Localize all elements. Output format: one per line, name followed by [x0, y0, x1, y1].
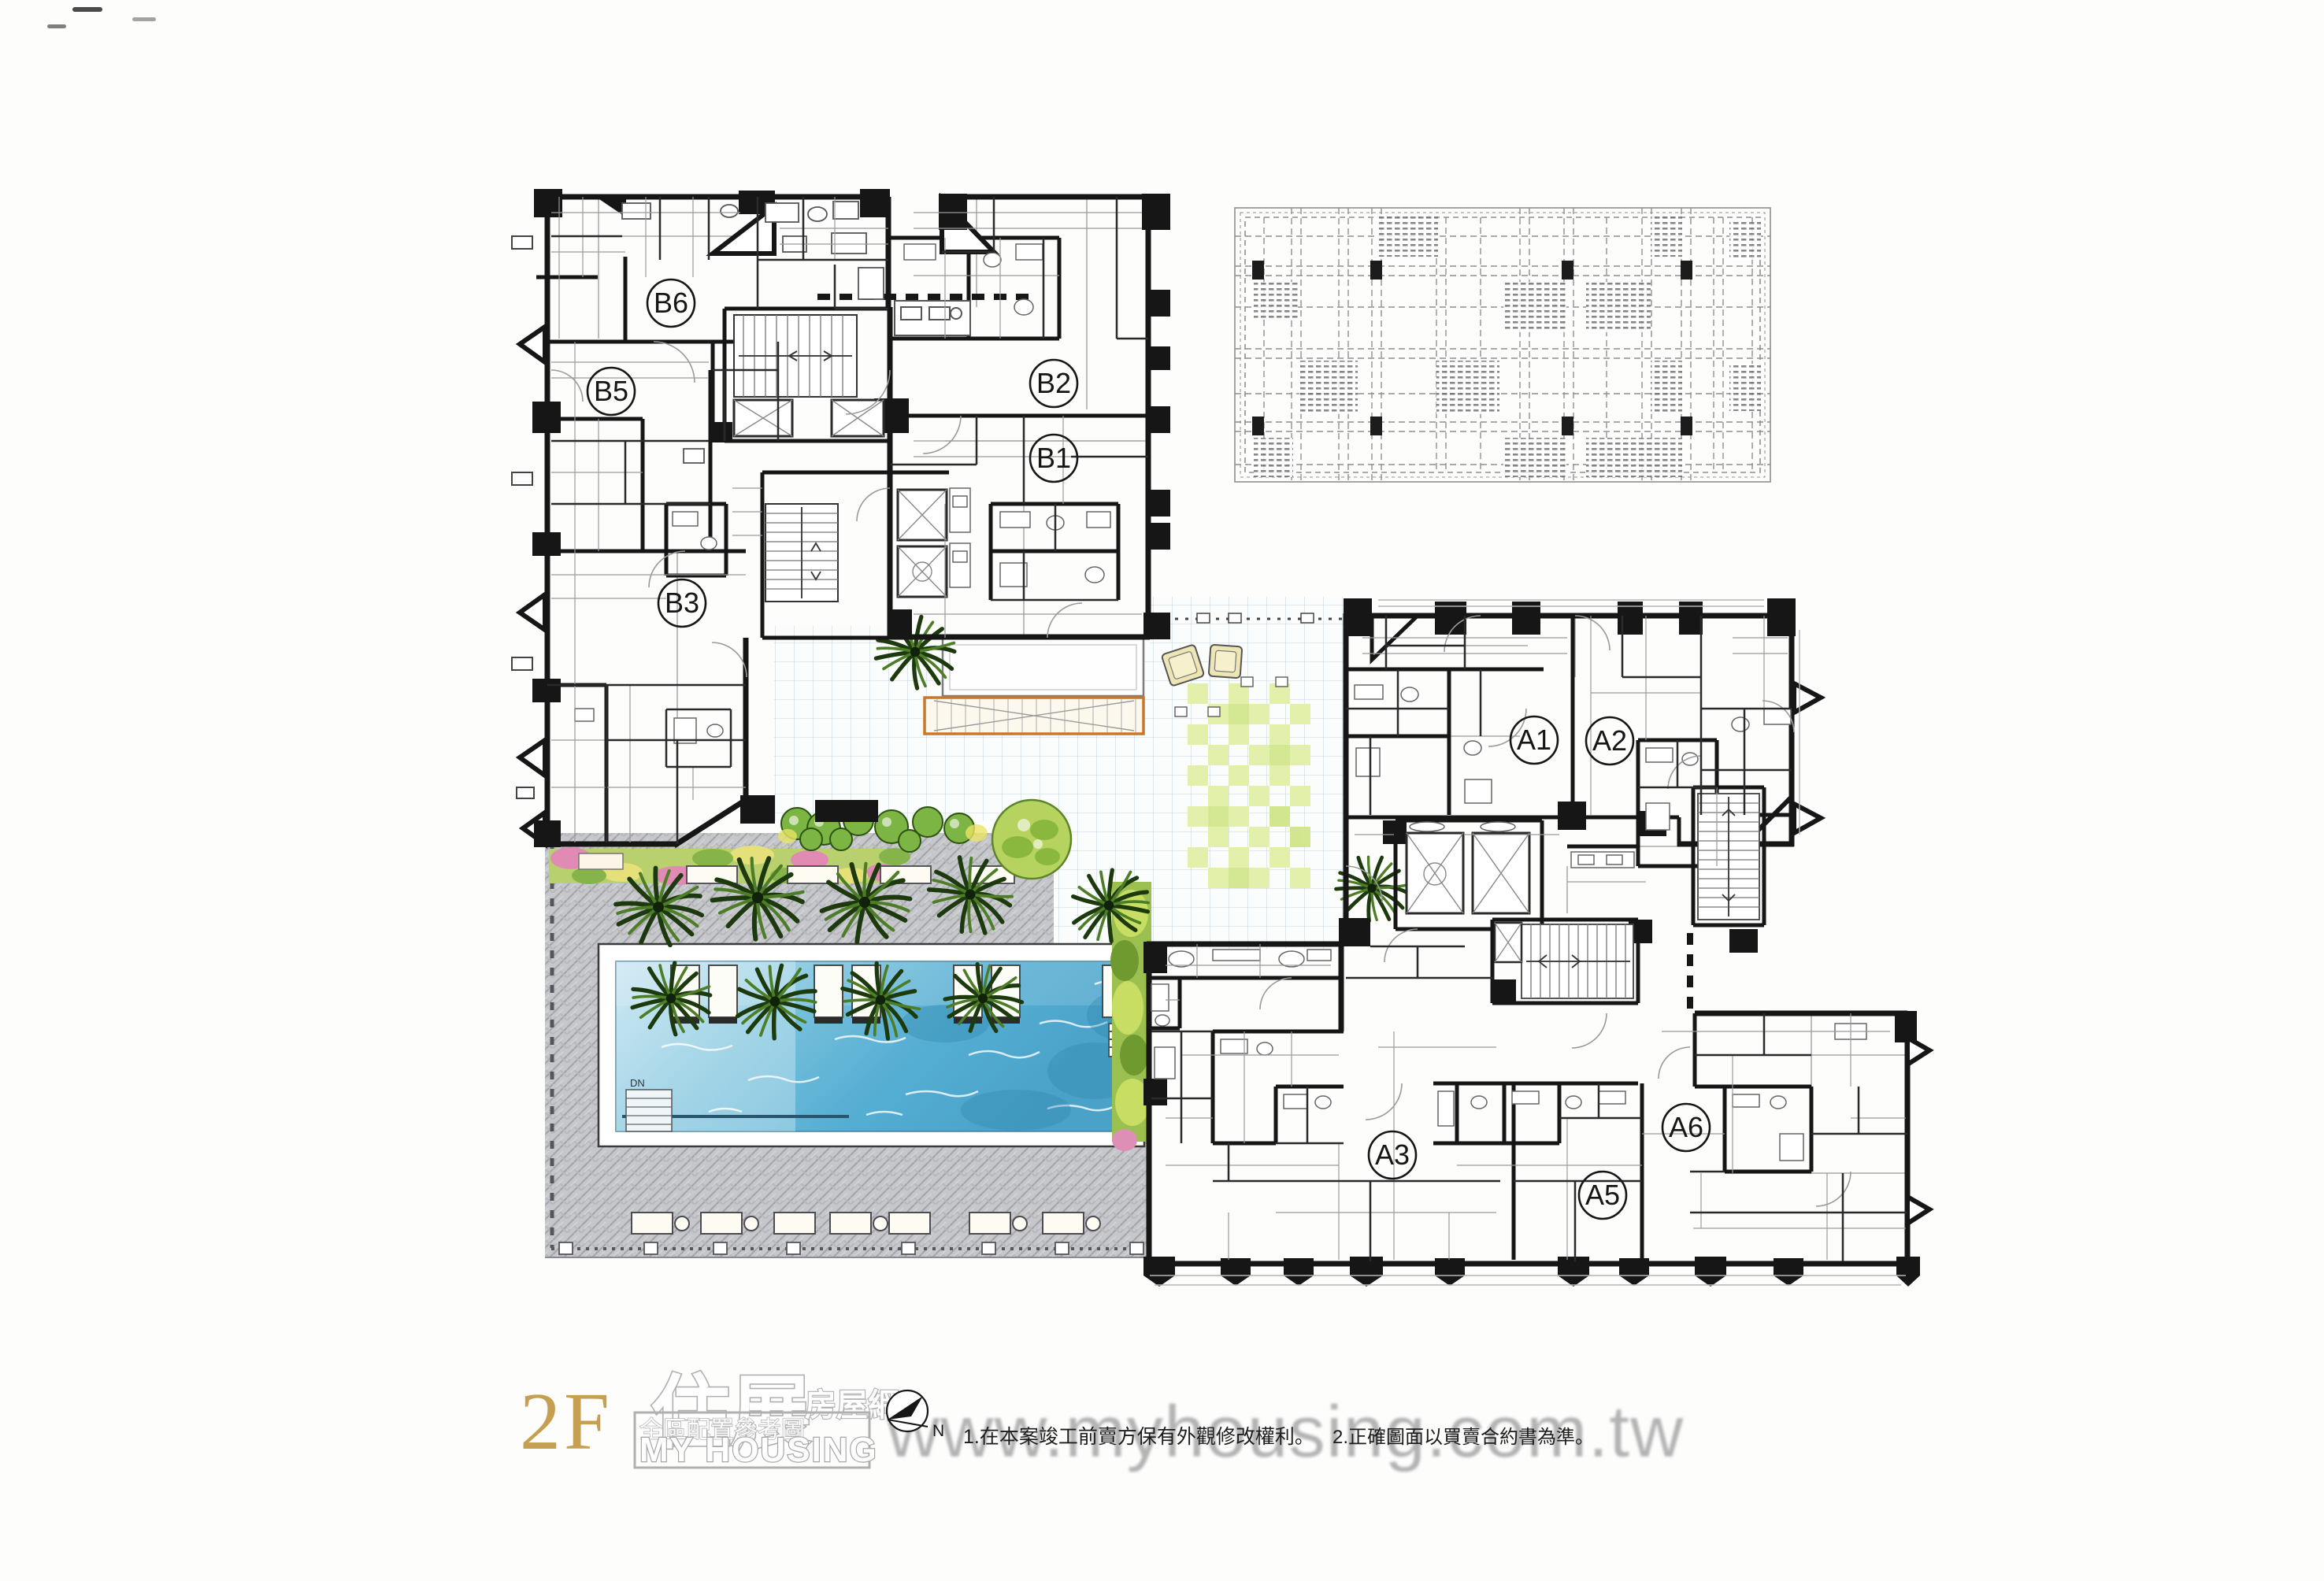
- svg-text:DN: DN: [630, 1077, 645, 1089]
- svg-text:A2: A2: [1592, 724, 1627, 757]
- svg-text:B1: B1: [1036, 442, 1071, 474]
- svg-text:A3: A3: [1375, 1139, 1410, 1171]
- svg-text:A1: A1: [1517, 724, 1551, 756]
- svg-text:B5: B5: [594, 375, 628, 407]
- svg-text:A5: A5: [1585, 1179, 1620, 1211]
- svg-text:2.正確圖面以買賣合約書為準。: 2.正確圖面以買賣合約書為準。: [1333, 1427, 1594, 1448]
- svg-text:房屋網: 房屋網: [805, 1388, 899, 1423]
- svg-text:1.在本案竣工前賣方保有外觀修改權利。: 1.在本案竣工前賣方保有外觀修改權利。: [963, 1426, 1314, 1448]
- svg-text:MY HOUSING: MY HOUSING: [639, 1431, 878, 1469]
- svg-text:B2: B2: [1036, 367, 1071, 399]
- svg-text:N: N: [932, 1422, 944, 1440]
- svg-text:2F: 2F: [520, 1376, 613, 1467]
- svg-text:A6: A6: [1669, 1111, 1703, 1143]
- svg-text:B3: B3: [665, 587, 699, 619]
- svg-text:B6: B6: [654, 287, 688, 319]
